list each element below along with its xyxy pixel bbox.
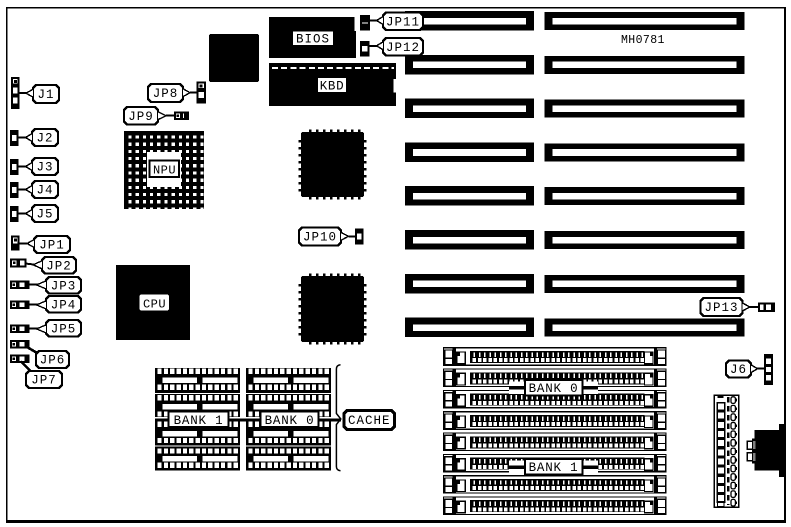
svg-text:JP4: JP4	[51, 298, 77, 312]
svg-text:JP13: JP13	[704, 301, 738, 315]
svg-text:JP9: JP9	[128, 110, 154, 124]
svg-text:JP5: JP5	[51, 322, 77, 336]
svg-text:BANK 1: BANK 1	[529, 461, 579, 475]
svg-text:KBD: KBD	[320, 80, 345, 94]
svg-text:JP6: JP6	[40, 354, 66, 368]
svg-text:J2: J2	[36, 132, 53, 146]
svg-text:BANK 0: BANK 0	[265, 414, 315, 428]
svg-text:J3: J3	[36, 161, 53, 175]
svg-text:NPU: NPU	[153, 164, 176, 178]
svg-text:JP12: JP12	[386, 41, 420, 55]
svg-text:BIOS: BIOS	[296, 33, 330, 47]
svg-text:J5: J5	[36, 208, 53, 222]
svg-text:JP7: JP7	[31, 374, 57, 388]
svg-text:BANK 0: BANK 0	[529, 382, 579, 396]
svg-text:JP3: JP3	[51, 279, 77, 293]
svg-text:JP8: JP8	[153, 87, 179, 101]
svg-text:CPU: CPU	[143, 298, 166, 312]
svg-text:J1: J1	[37, 88, 54, 102]
svg-text:JP11: JP11	[386, 15, 420, 29]
svg-text:BANK 1: BANK 1	[174, 414, 224, 428]
svg-text:JP2: JP2	[46, 259, 72, 273]
svg-text:JP10: JP10	[303, 231, 337, 245]
svg-text:JP1: JP1	[39, 239, 65, 253]
svg-text:MH0781: MH0781	[621, 34, 665, 47]
svg-text:J6: J6	[730, 363, 747, 377]
svg-text:CACHE: CACHE	[348, 414, 391, 428]
svg-text:J4: J4	[36, 184, 53, 198]
